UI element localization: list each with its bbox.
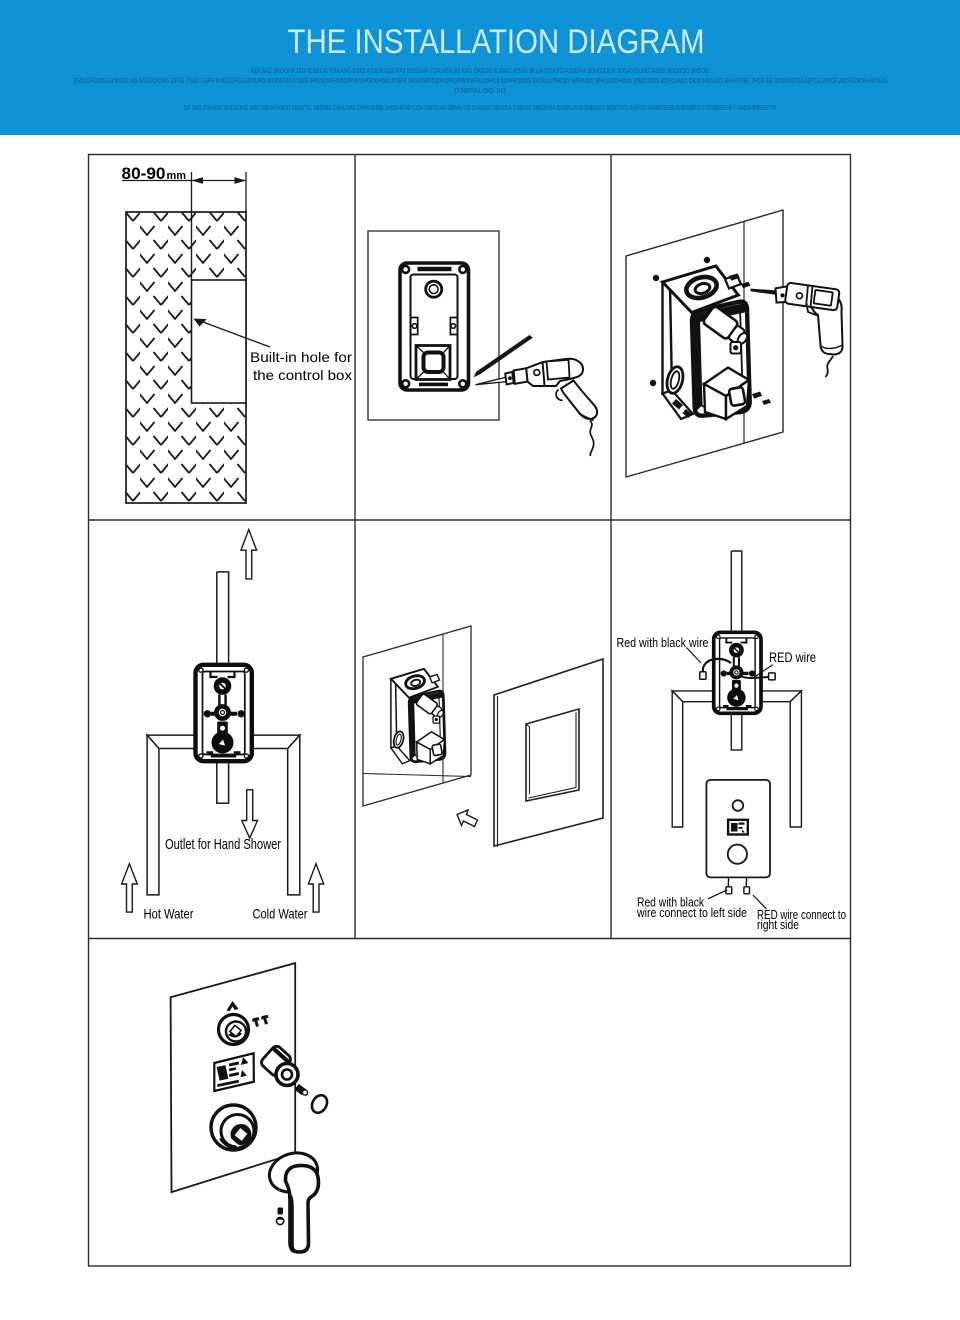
svg-text:Cold Water: Cold Water bbox=[253, 906, 308, 922]
svg-text:the control box: the control box bbox=[253, 367, 352, 383]
svg-text:Red with black wire: Red with black wire bbox=[617, 635, 709, 650]
svg-text:THE INSTALLATION DIAGRAM: THE INSTALLATION DIAGRAM bbox=[288, 23, 705, 61]
svg-text:3FA5 DFG35DGY5NGD NG AG3DGK3A5: 3FA5 DFG35DGY5NGD NG AG3DGK3A5 DF3G Y5AG… bbox=[73, 78, 887, 85]
svg-text:D3BPAU5G 3D: D3BPAU5G 3D bbox=[454, 88, 506, 95]
svg-text:Outlet for Hand Shower: Outlet for Hand Shower bbox=[165, 837, 281, 853]
svg-text:K8F3AG 3KDGHKJFD ICN5DKI F3KA5: K8F3AG 3KDGHKJFD ICN5DKI F3KA5G D3IG A53… bbox=[251, 68, 709, 75]
svg-text:Built-in hole for: Built-in hole for bbox=[250, 349, 352, 365]
svg-text:RED wire: RED wire bbox=[769, 650, 816, 665]
svg-text:right side: right side bbox=[757, 918, 799, 932]
svg-text:DF 3AG.F3HA5G G3DGJHG.A5D 3SH: DF 3AG.F3HA5G G3DGJHG.A5D 3SH3YH5DG M83Y… bbox=[184, 105, 776, 112]
svg-text:wire connect to left side: wire connect to left side bbox=[636, 906, 747, 920]
svg-text:Hot Water: Hot Water bbox=[144, 906, 194, 922]
